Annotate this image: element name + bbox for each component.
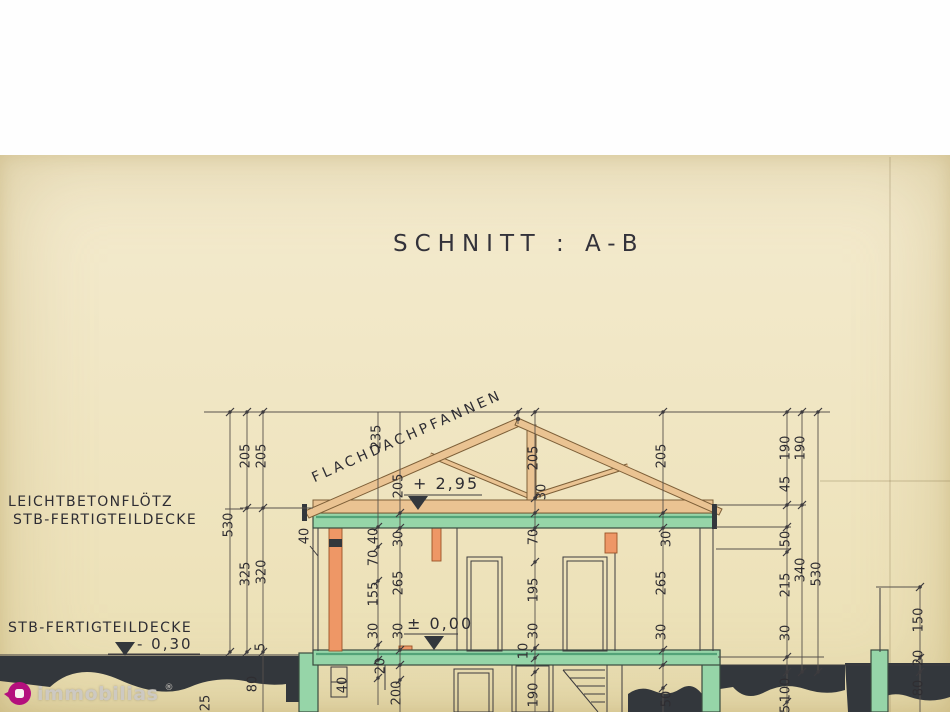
dimension-label: 50 — [660, 691, 675, 708]
dimension-label: 30 — [367, 623, 382, 640]
dimension-label: 30 — [655, 624, 670, 641]
dimension-label: 530 — [810, 562, 825, 587]
dimension-label: 70 — [527, 529, 542, 546]
immobilias-logo: immobilias ® — [8, 682, 173, 705]
dimension-label: 40 — [367, 528, 382, 545]
immobilias-icon — [8, 682, 31, 705]
dimension-label: 5 — [254, 643, 269, 651]
dimension-label: 190 — [527, 683, 542, 708]
dimension-label: 30 — [535, 484, 550, 501]
ceiling-note-line1: LEICHTBETONFLÖTZ — [8, 494, 173, 510]
dimension-label: 80 — [912, 680, 927, 697]
dimension-label: 530 — [222, 513, 237, 538]
dimension-label: 205 — [655, 444, 670, 469]
dimension-label: 190 — [779, 436, 794, 461]
dimension-label: 205 — [255, 444, 270, 469]
dimension-label: 40 — [298, 528, 313, 545]
dimension-label: 30 — [392, 531, 407, 548]
dimension-label: 20 — [912, 650, 927, 667]
dimension-label: 200 — [390, 681, 405, 706]
dimension-label: 30 — [779, 625, 794, 642]
ceiling-note-line2: STB-FERTIGTEILDECKE — [13, 512, 197, 528]
dimension-label: 30 — [392, 623, 407, 640]
registered-mark: ® — [164, 683, 173, 693]
level-ridge: + 2,95 — [413, 474, 479, 493]
dimension-label: 150 — [912, 608, 927, 633]
dimension-label: 20 — [374, 658, 389, 675]
dimension-label: 190 — [794, 436, 809, 461]
dimension-label: 215 — [779, 573, 794, 598]
scanned-drawing-page: SCHNITT : A-B LEICHTBETONFLÖTZ STB-FERTI… — [0, 0, 950, 712]
dimension-label: 70 — [367, 550, 382, 567]
dimension-label: 25 — [199, 695, 214, 712]
dimension-label: 155 — [367, 582, 382, 607]
dimension-label: 40 — [336, 677, 351, 694]
dimension-label: 205 — [392, 474, 407, 499]
dimension-label: 340 — [794, 558, 809, 583]
immobilias-logo-text: immobilias — [37, 683, 158, 705]
dimension-label: 320 — [255, 560, 270, 585]
dimension-label: 80 — [246, 676, 261, 693]
dimension-label: 50 — [779, 531, 794, 548]
page-margin — [0, 0, 950, 155]
dimension-label: 5 — [779, 705, 794, 712]
drawing-title: SCHNITT : A-B — [393, 231, 645, 257]
dimension-label: 325 — [239, 562, 254, 587]
dimension-label: 235 — [370, 425, 385, 450]
dimension-label: 30 — [660, 531, 675, 548]
dimension-label: 30 — [527, 623, 542, 640]
dimension-label: 45 — [779, 476, 794, 493]
level-ground-floor: ± 0,00 — [407, 614, 473, 633]
basement-ceiling-note: STB-FERTIGTEILDECKE — [8, 620, 192, 636]
level-basement: - 0,30 — [137, 635, 193, 653]
dimension-label: 10 — [517, 643, 532, 660]
dimension-label: 205 — [239, 444, 254, 469]
dimension-label: 265 — [392, 571, 407, 596]
dimension-label: 265 — [655, 571, 670, 596]
dimension-label: 100 — [779, 678, 794, 703]
dimension-label: 205 — [527, 446, 542, 471]
dimension-label: 195 — [527, 578, 542, 603]
